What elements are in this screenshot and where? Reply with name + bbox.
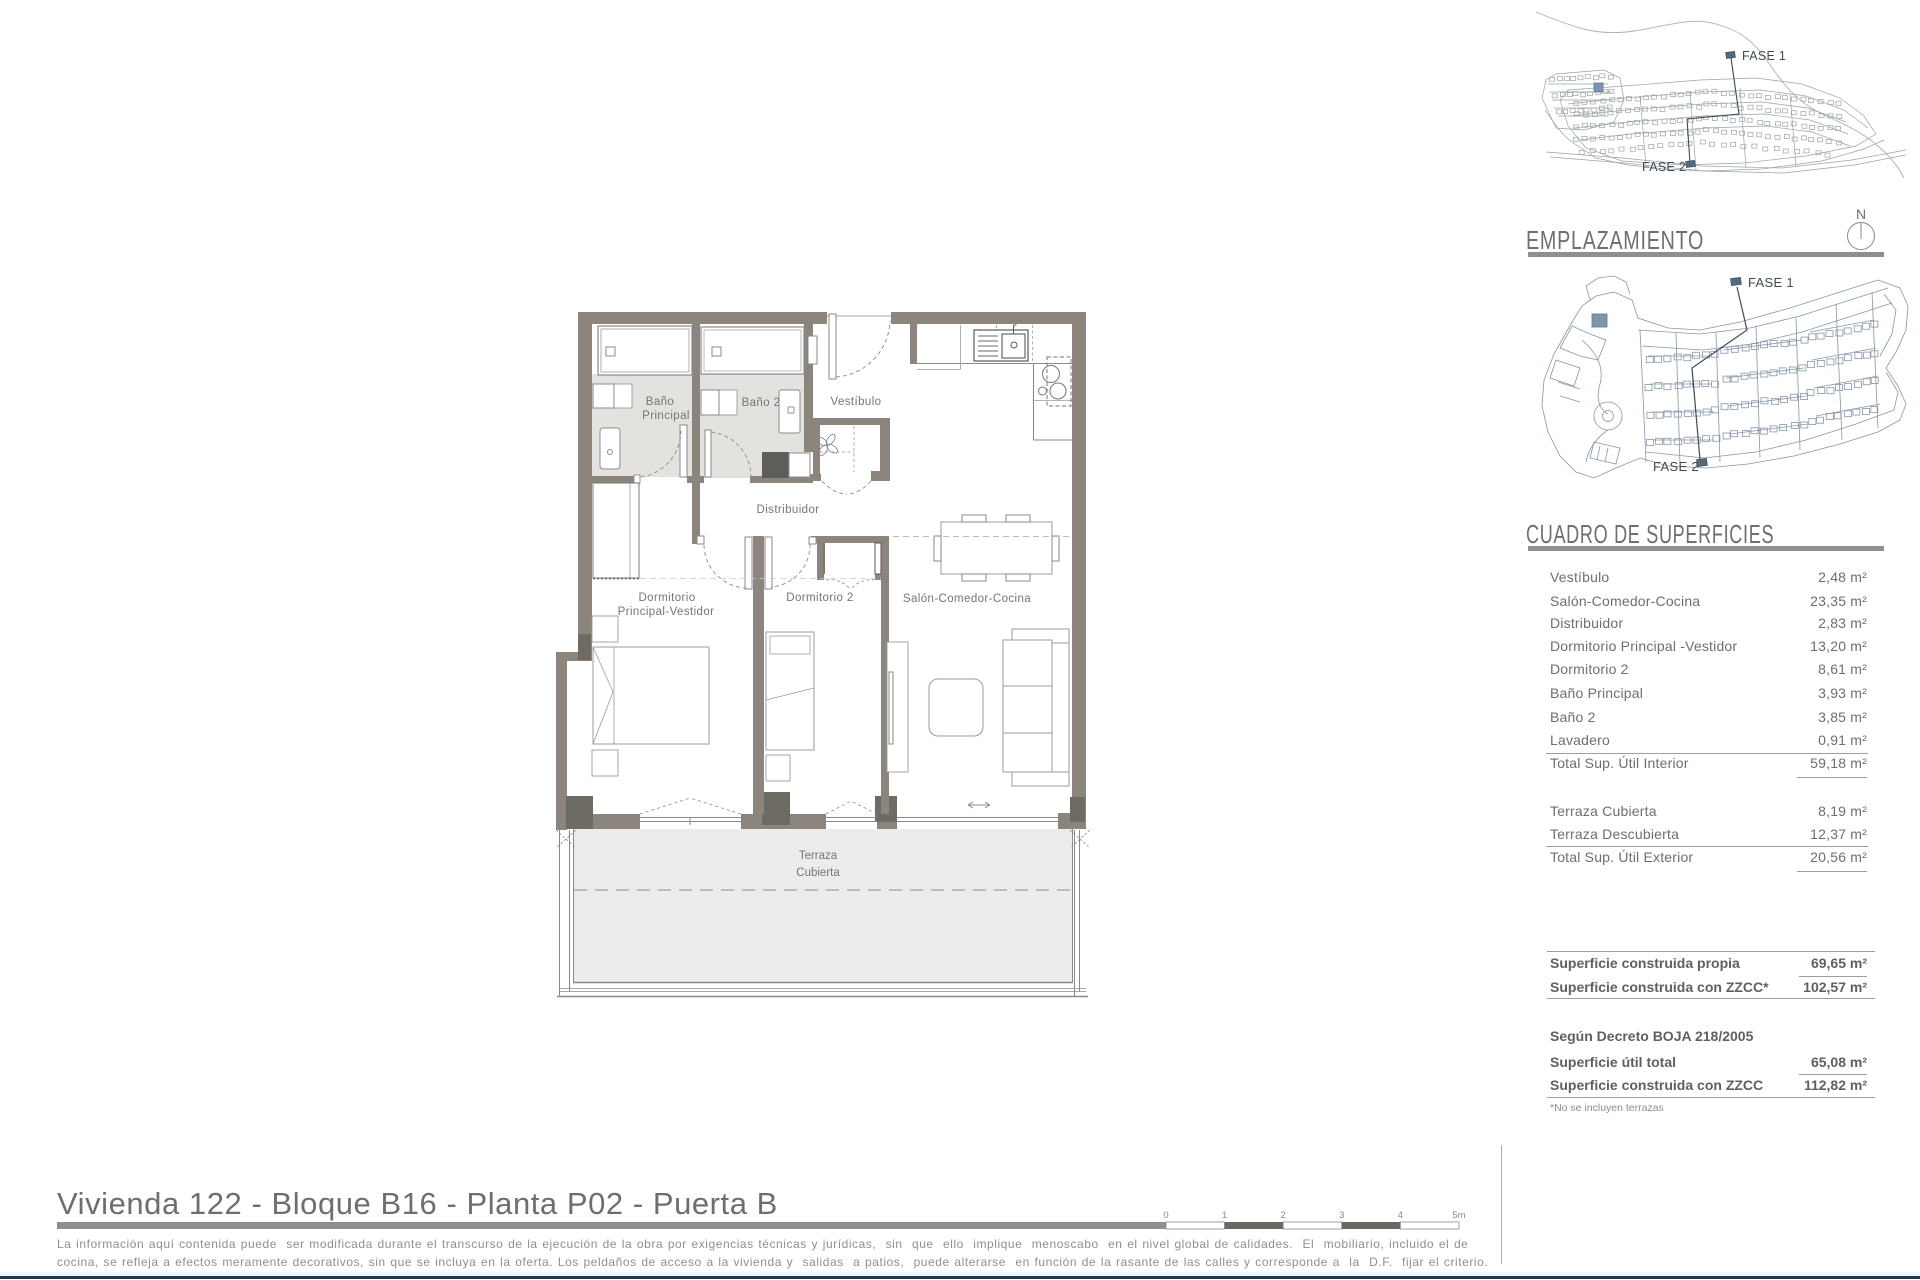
svg-text:Terraza: Terraza — [799, 850, 838, 862]
svg-text:Distribuidor: Distribuidor — [757, 504, 820, 516]
svg-text:Principal-Vestidor: Principal-Vestidor — [618, 606, 715, 618]
svg-text:Dormitorio: Dormitorio — [638, 592, 695, 604]
svg-text:FASE 1: FASE 1 — [1748, 275, 1794, 290]
svg-text:3: 3 — [1339, 1210, 1344, 1221]
svg-text:0: 0 — [1163, 1210, 1168, 1221]
svg-text:Salón-Comedor-Cocina: Salón-Comedor-Cocina — [903, 593, 1031, 605]
svg-text:4: 4 — [1398, 1210, 1403, 1221]
svg-text:1: 1 — [1222, 1210, 1227, 1221]
svg-text:2: 2 — [1281, 1210, 1286, 1221]
svg-text:Baño: Baño — [646, 396, 674, 408]
svg-text:FASE 2: FASE 2 — [1653, 459, 1699, 474]
svg-text:N: N — [1856, 206, 1866, 222]
svg-text:5m: 5m — [1452, 1210, 1465, 1221]
svg-text:Principal: Principal — [642, 410, 690, 422]
svg-text:FASE 2: FASE 2 — [1642, 160, 1686, 174]
svg-text:FASE 1: FASE 1 — [1742, 49, 1786, 63]
svg-text:Dormitorio 2: Dormitorio 2 — [786, 592, 853, 604]
svg-text:Vestíbulo: Vestíbulo — [831, 396, 882, 408]
svg-text:Cubierta: Cubierta — [796, 867, 840, 879]
svg-text:Baño 2: Baño 2 — [742, 397, 781, 409]
